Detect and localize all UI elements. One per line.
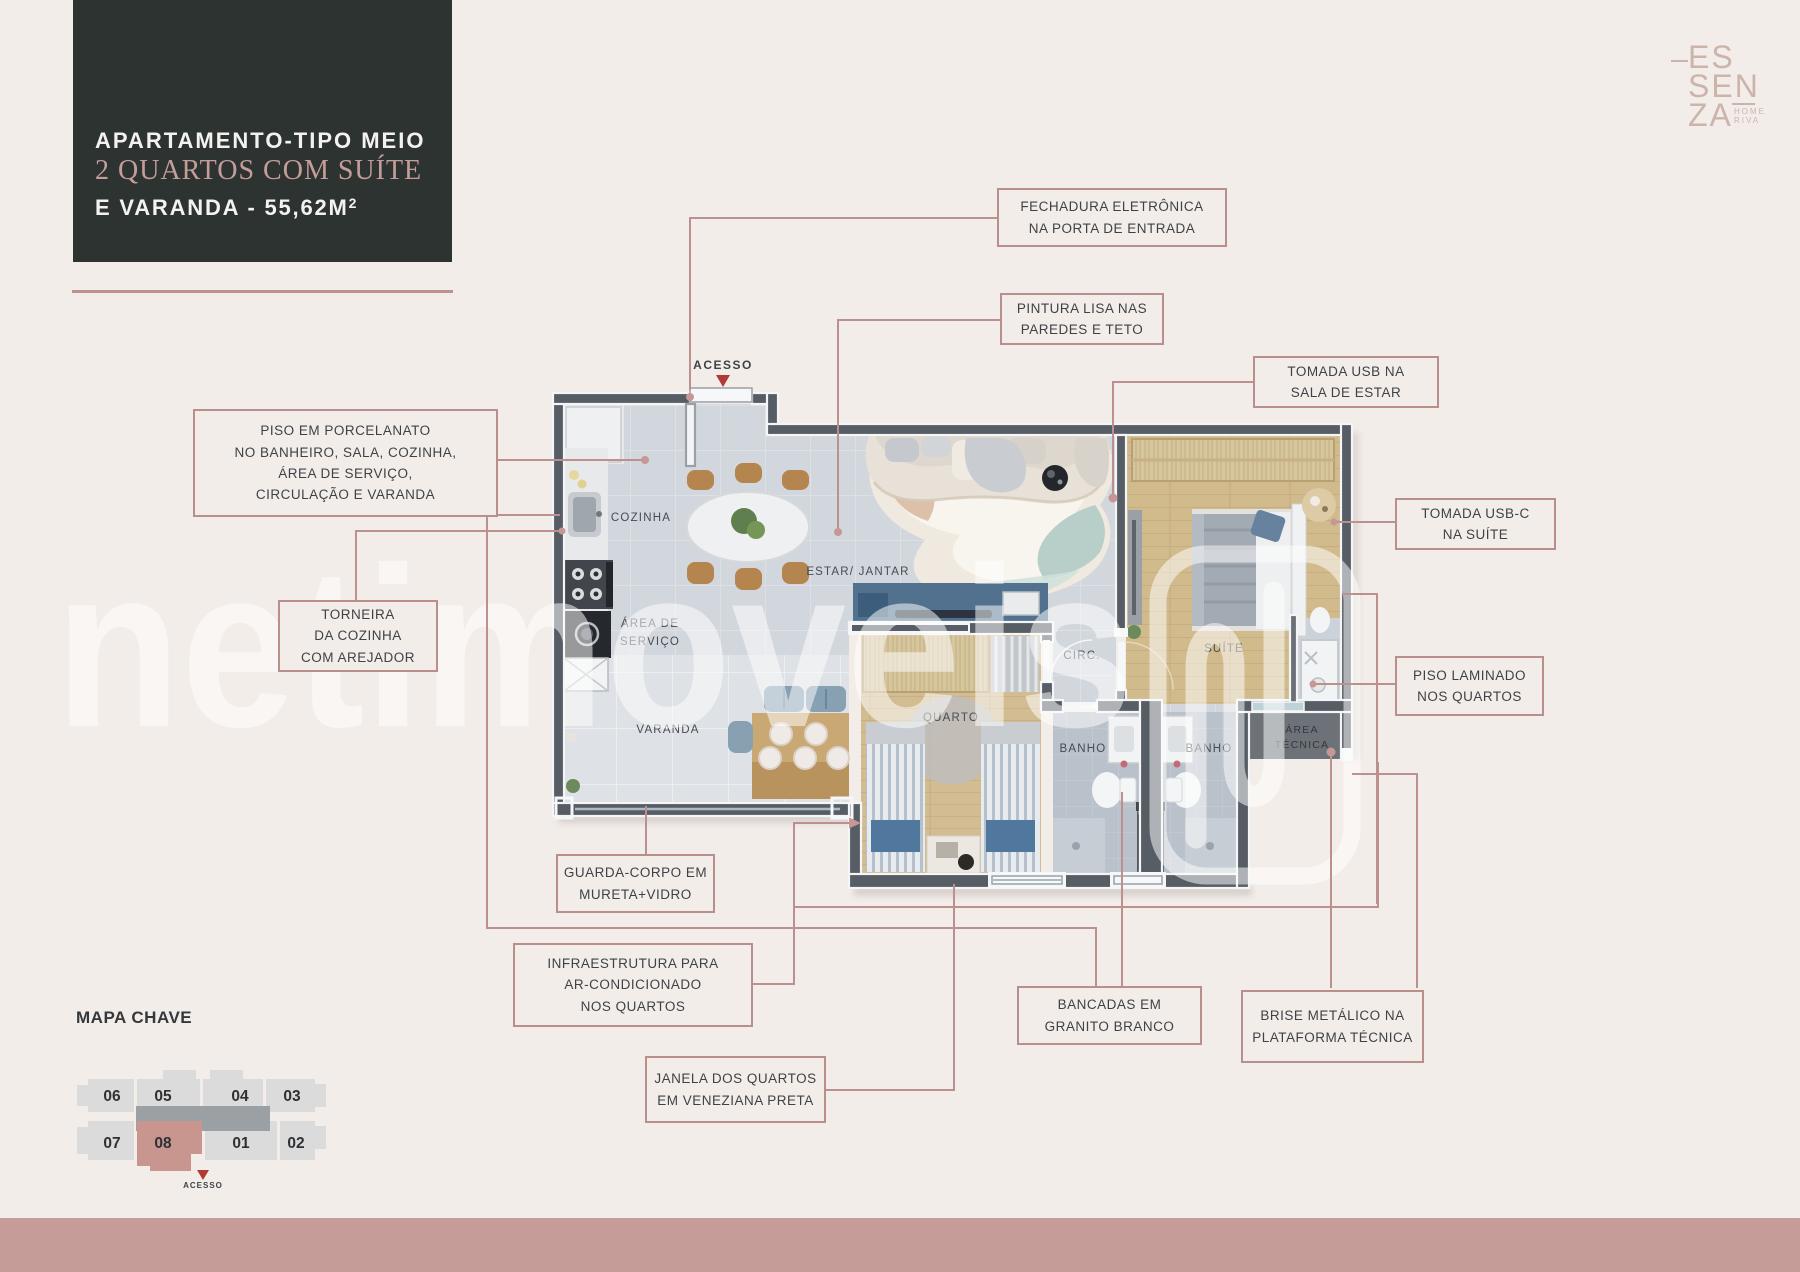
- svg-text:08: 08: [154, 1135, 172, 1152]
- svg-text:07: 07: [103, 1135, 120, 1152]
- svg-text:netimoveis: netimoveis: [55, 521, 1133, 775]
- svg-text:ÁREA: ÁREA: [1285, 723, 1318, 736]
- svg-text:05: 05: [154, 1088, 172, 1105]
- svg-text:ACESSO: ACESSO: [183, 1181, 223, 1190]
- svg-text:ACESSO: ACESSO: [693, 358, 753, 372]
- svg-text:06: 06: [103, 1088, 121, 1105]
- svg-text:02: 02: [287, 1135, 304, 1152]
- svg-text:04: 04: [231, 1088, 249, 1105]
- svg-text:01: 01: [232, 1135, 250, 1152]
- svg-text:03: 03: [283, 1088, 301, 1105]
